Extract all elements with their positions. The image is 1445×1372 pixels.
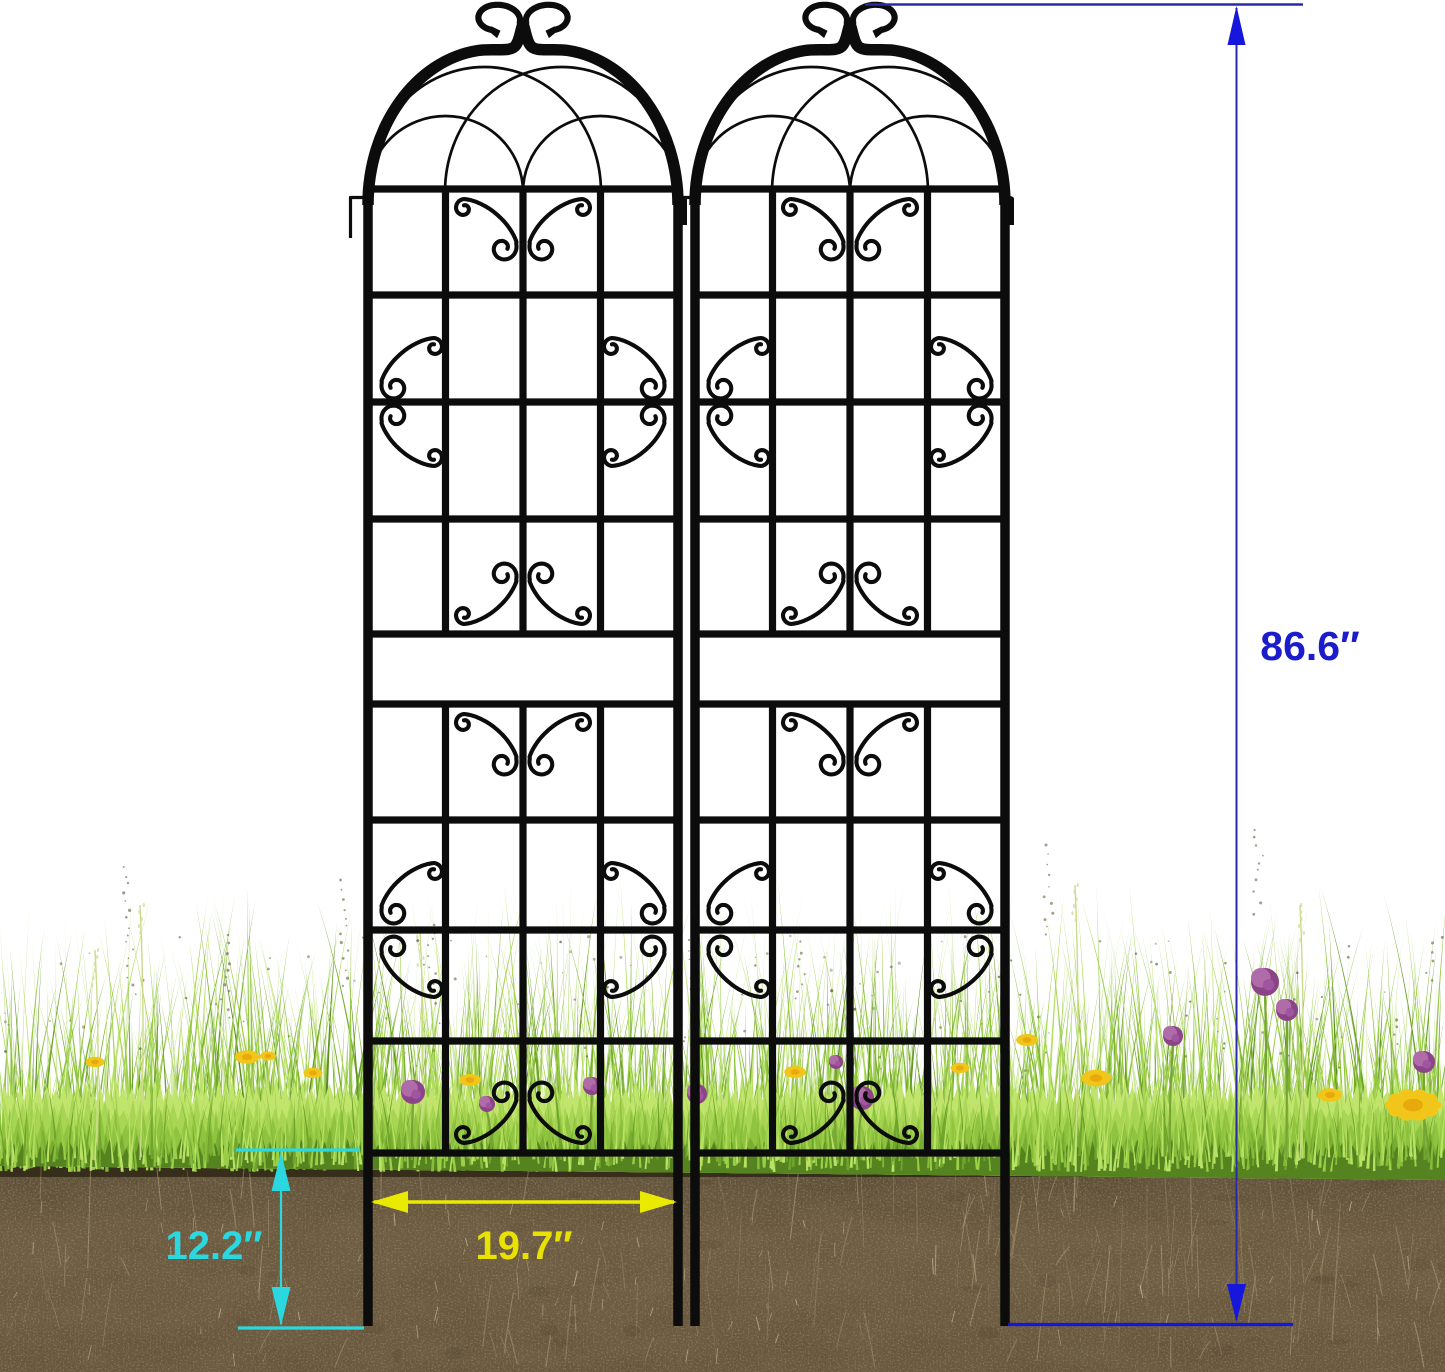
svg-text:19.7″: 19.7″ (475, 1224, 572, 1268)
svg-text:86.6″: 86.6″ (1260, 623, 1359, 669)
svg-text:12.2″: 12.2″ (165, 1224, 262, 1268)
